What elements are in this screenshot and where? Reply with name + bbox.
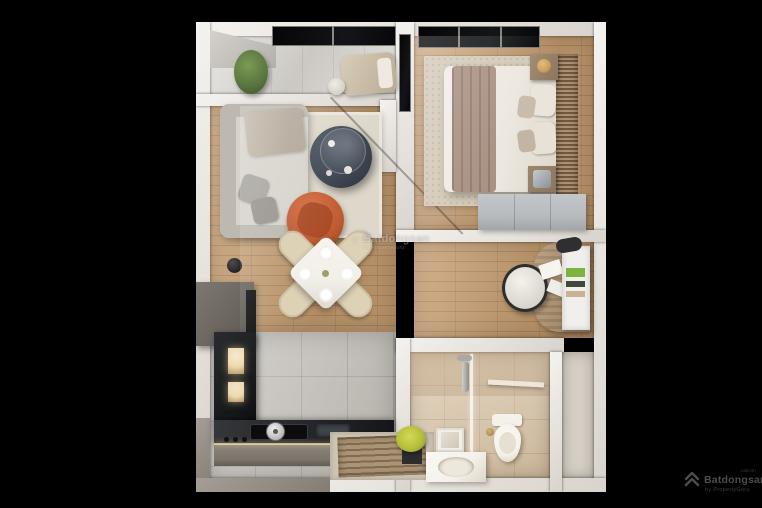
coffee-table-decor xyxy=(328,140,335,147)
wardrobe-divider xyxy=(550,194,551,230)
tv-console-panel xyxy=(246,290,256,338)
headboard-slat-wall xyxy=(556,54,578,204)
bedroom-window-mullion xyxy=(458,26,460,48)
book-tan xyxy=(566,291,585,297)
wall-kitchen-metal-bottom xyxy=(196,478,330,492)
balcony-plant xyxy=(234,50,268,94)
wall-bathroom-top xyxy=(396,338,564,352)
bed-accent-pillow xyxy=(517,129,537,153)
bedroom-window xyxy=(418,26,540,48)
balcony-lounge-pillow xyxy=(377,57,394,88)
balcony-side-table xyxy=(328,78,345,95)
shower-column xyxy=(462,362,469,392)
table-centerpiece xyxy=(322,270,329,277)
toilet-seat xyxy=(499,432,516,454)
decor-sphere xyxy=(227,258,242,273)
table-lamp xyxy=(537,59,551,73)
batdongsan-house-icon xyxy=(684,470,700,489)
shower-head xyxy=(457,355,472,361)
bed-blanket xyxy=(452,66,496,192)
wardrobe-divider xyxy=(514,194,515,230)
watermark-brand: Batdongsan xyxy=(363,233,430,245)
counter-knob xyxy=(233,437,238,442)
kitchen-cabinet-lit-shelf xyxy=(228,348,244,374)
bathroom-wall-band xyxy=(410,352,550,396)
counter-knob xyxy=(242,437,247,442)
batdongsan-logo: .com.vn Batdongsan by PropertyGuru xyxy=(684,466,760,496)
logo-byline: by PropertyGuru xyxy=(705,487,750,493)
dinner-plate xyxy=(319,288,333,302)
floorplan-render: ⌂ Batdongsan by PropertyGuru .com.vn Bat… xyxy=(0,0,762,508)
counter-knob xyxy=(224,437,229,442)
bathroom-plant xyxy=(396,426,426,452)
utility-room-floor xyxy=(562,352,594,478)
watermark-house-icon: ⌂ xyxy=(352,234,358,245)
sofa-backrest xyxy=(220,104,236,238)
center-watermark: ⌂ Batdongsan by PropertyGuru xyxy=(352,233,482,255)
bedroom-wardrobe xyxy=(478,194,586,230)
nightstand-decor-box xyxy=(533,170,551,188)
soap-dispenser-gold xyxy=(486,428,494,436)
glass-door-bedroom xyxy=(399,34,411,112)
dinner-plate xyxy=(319,246,333,260)
book-dark xyxy=(566,281,585,287)
sofa-pillow xyxy=(250,196,280,226)
watermark-byline: by PropertyGuru xyxy=(364,245,404,251)
sofa-throw-blanket xyxy=(244,107,306,157)
bathroom-sink-bowl xyxy=(438,457,474,477)
bedroom-window-mullion xyxy=(500,26,502,48)
desk-organizer xyxy=(562,246,590,330)
kitchen-cabinet-tall xyxy=(214,332,256,424)
book-green xyxy=(566,268,585,277)
dinner-plate xyxy=(298,267,312,281)
coffee-table-decor xyxy=(344,166,352,174)
balcony-glass-mullion xyxy=(332,26,334,46)
wall-bathroom-right xyxy=(550,352,562,492)
bathroom-mirror-glass xyxy=(441,432,459,448)
kitchen-cabinet-lit-shelf xyxy=(228,382,244,402)
cooking-pot-lid-knob xyxy=(273,429,278,434)
bed-accent-pillow xyxy=(517,95,537,119)
balcony-glass-railing xyxy=(272,26,396,46)
logo-brand: Batdongsan xyxy=(704,474,762,486)
wall-outer-right xyxy=(594,22,606,492)
logo-domain: .com.vn xyxy=(740,468,756,473)
coffee-table-decor xyxy=(326,170,332,176)
coffee-table-glass-top xyxy=(320,128,366,174)
dinner-plate xyxy=(340,267,354,281)
